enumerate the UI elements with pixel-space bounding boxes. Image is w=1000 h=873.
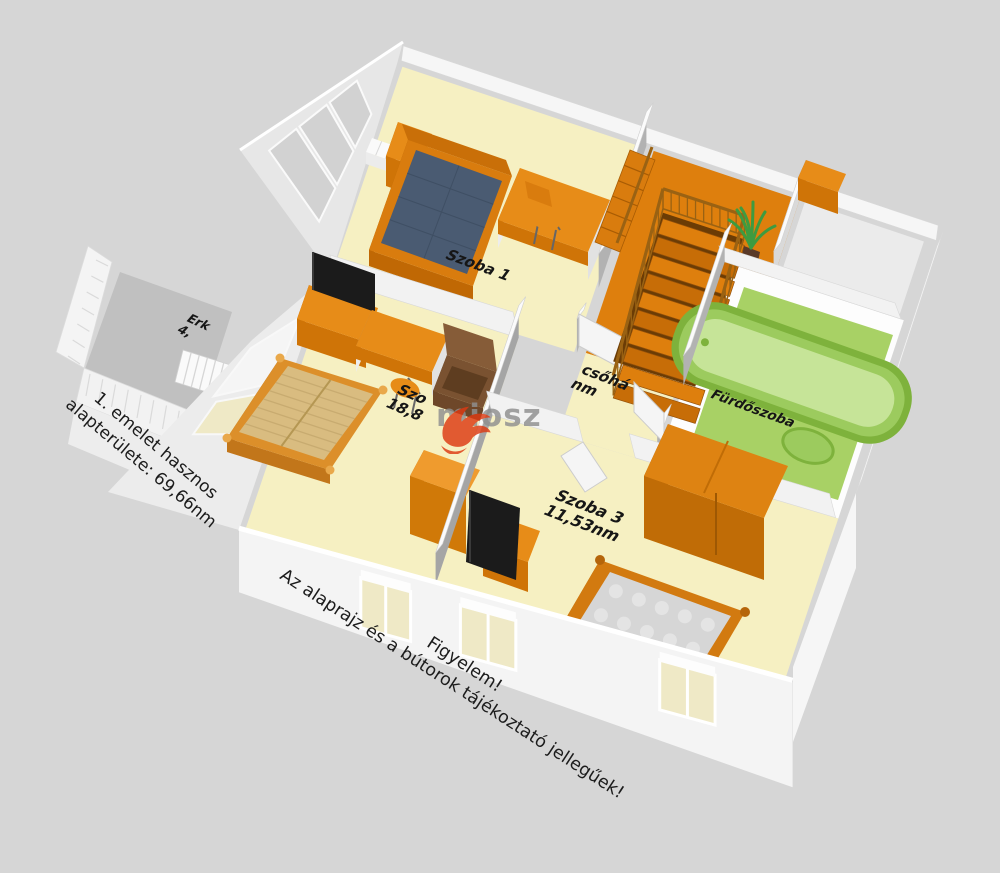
watermark: miosz bbox=[436, 398, 542, 434]
watermark-bird-icon bbox=[436, 398, 498, 454]
floorplan-page: miosz Szoba 1 Szo 18,8 csőhá nm Szoba 3 … bbox=[0, 0, 1000, 873]
